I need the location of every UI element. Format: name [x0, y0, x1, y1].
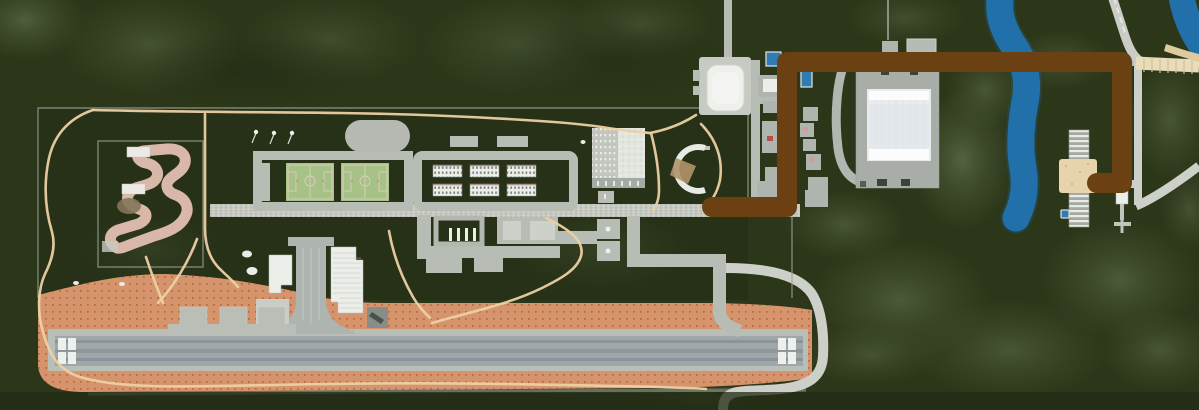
- soccer-field: [286, 163, 334, 201]
- ice-rink: [693, 57, 751, 115]
- shelter-pad: [450, 136, 478, 147]
- apron-stands: [168, 307, 296, 334]
- track-bridge: [127, 147, 150, 157]
- forest-south-band: [0, 392, 1199, 410]
- soccer-field: [341, 163, 389, 201]
- runway: [48, 329, 808, 371]
- aerial-map[interactable]: [0, 0, 1199, 410]
- map-viewport[interactable]: [0, 0, 1199, 410]
- river-northeast: [1181, 0, 1199, 42]
- shelter-pad: [497, 136, 528, 147]
- running-oval: [345, 120, 410, 152]
- start-finish-pad: [102, 241, 118, 252]
- dirt-mound: [117, 198, 141, 214]
- track-bridge: [122, 184, 145, 194]
- helipad: [367, 307, 388, 328]
- water-feature: [1061, 210, 1069, 218]
